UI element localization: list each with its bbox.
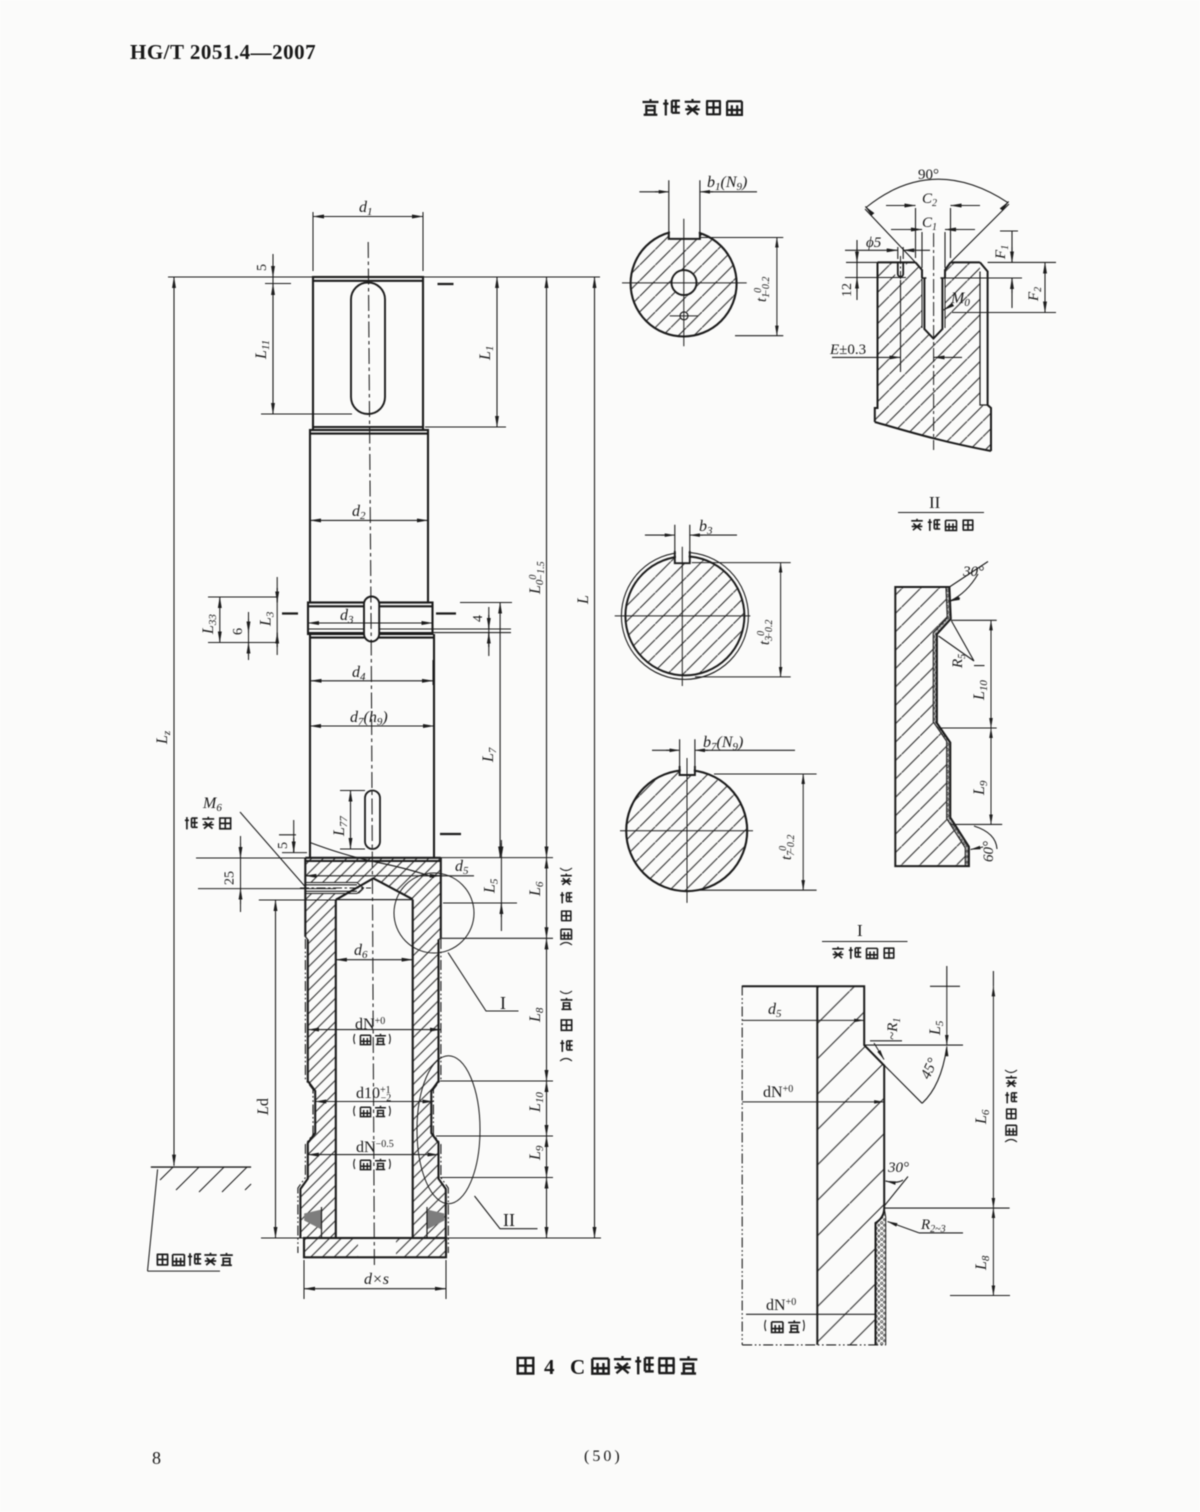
svg-text:5: 5 [255, 264, 270, 271]
svg-text:L: L [575, 595, 592, 605]
svg-text:4: 4 [471, 615, 486, 622]
svg-text:d×s: d×s [364, 1271, 389, 1288]
svg-text:HG/T 2051.4—2007: HG/T 2051.4—2007 [130, 40, 316, 64]
svg-text:C: C [570, 1355, 585, 1379]
svg-text:60°: 60° [981, 841, 997, 862]
svg-text:Ld: Ld [255, 1098, 272, 1116]
svg-text:E±0.3: E±0.3 [829, 342, 866, 358]
svg-text:b7(N9): b7(N9) [703, 734, 743, 753]
svg-text:6: 6 [231, 628, 246, 635]
svg-text:30°: 30° [887, 1160, 909, 1176]
svg-text:II: II [929, 493, 941, 512]
svg-text:12: 12 [840, 283, 855, 297]
svg-text:30°: 30° [962, 564, 984, 580]
svg-text:I: I [500, 993, 506, 1013]
svg-text:4: 4 [544, 1355, 555, 1379]
svg-text:II: II [503, 1210, 515, 1230]
svg-text:d7(h9): d7(h9) [350, 709, 388, 728]
svg-text:25: 25 [223, 871, 238, 885]
svg-text:ϕ5: ϕ5 [866, 235, 882, 251]
svg-text:b1(N9): b1(N9) [707, 174, 747, 193]
svg-text:I: I [857, 921, 863, 940]
svg-text:(50): (50) [584, 1448, 623, 1465]
svg-text:5: 5 [276, 842, 291, 849]
svg-text:90°: 90° [918, 167, 939, 183]
svg-text:8: 8 [152, 1448, 161, 1468]
